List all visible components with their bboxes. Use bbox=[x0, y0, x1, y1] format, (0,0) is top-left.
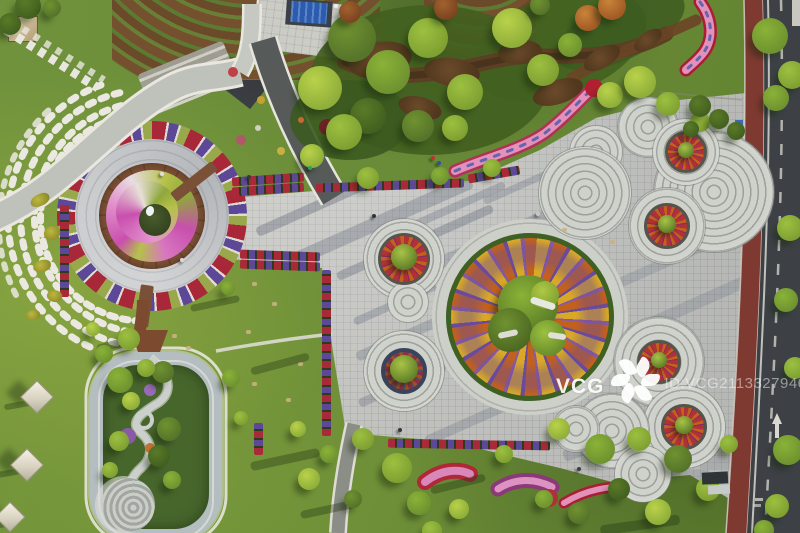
tree bbox=[221, 281, 235, 295]
tree bbox=[152, 361, 174, 383]
flower-bed-tree bbox=[675, 416, 693, 434]
tree bbox=[157, 417, 181, 441]
topiary-hedge bbox=[26, 310, 40, 320]
person-dot bbox=[398, 428, 402, 432]
tree bbox=[15, 0, 41, 19]
tree bbox=[163, 471, 181, 489]
flower-bed-tree bbox=[678, 142, 694, 158]
park-aerial-photo: VCG ID:VCG211332794686 | bbox=[0, 0, 800, 533]
tree bbox=[784, 357, 800, 379]
tree bbox=[408, 18, 448, 58]
tree bbox=[148, 445, 170, 467]
tree bbox=[320, 445, 338, 463]
tree bbox=[447, 74, 483, 110]
canopy-tent bbox=[0, 501, 26, 532]
tree bbox=[727, 122, 745, 140]
lawn-shadow bbox=[430, 473, 486, 494]
tree bbox=[222, 369, 240, 387]
topiary-hedge bbox=[29, 191, 52, 209]
lawn-stone bbox=[186, 346, 191, 350]
tree bbox=[765, 494, 789, 518]
lawn-flower-patch bbox=[298, 117, 304, 123]
mulch-patch bbox=[580, 39, 625, 76]
person-dot bbox=[180, 258, 184, 262]
tree bbox=[535, 490, 553, 508]
canopy-tent bbox=[20, 380, 54, 414]
tree bbox=[683, 121, 699, 137]
lawn-stone bbox=[252, 382, 257, 386]
flower-planter-row bbox=[322, 270, 331, 436]
tree bbox=[357, 167, 379, 189]
lawn-stone bbox=[286, 398, 291, 402]
tree bbox=[778, 61, 800, 89]
tree bbox=[763, 85, 789, 111]
tree bbox=[558, 33, 582, 57]
tree bbox=[773, 435, 800, 465]
tree bbox=[434, 0, 458, 20]
lawn-shadow bbox=[190, 295, 240, 312]
tree bbox=[449, 499, 469, 519]
tree bbox=[598, 0, 626, 20]
lawn-flower-patch bbox=[236, 135, 246, 145]
lawn-stone bbox=[272, 302, 277, 306]
tree bbox=[752, 18, 788, 54]
flower-bed-tree bbox=[658, 215, 676, 233]
tree bbox=[102, 462, 118, 478]
topiary-hedge bbox=[32, 259, 51, 273]
person-dot bbox=[308, 166, 312, 170]
tree bbox=[326, 114, 362, 150]
tree bbox=[0, 13, 21, 35]
tree bbox=[300, 144, 324, 168]
tree bbox=[548, 418, 570, 440]
tree bbox=[344, 490, 362, 508]
flower-planter-row bbox=[60, 205, 69, 297]
tree bbox=[530, 0, 550, 15]
paving-ring-set bbox=[539, 147, 631, 239]
tree bbox=[777, 215, 800, 241]
flower-bed-tree bbox=[390, 355, 418, 383]
flower-planter-row bbox=[388, 439, 550, 451]
tree bbox=[664, 445, 692, 473]
tree bbox=[431, 167, 449, 185]
tree bbox=[608, 478, 630, 500]
tree bbox=[442, 115, 468, 141]
tree bbox=[709, 109, 729, 129]
tree bbox=[137, 359, 155, 377]
tree bbox=[422, 521, 442, 533]
tree bbox=[597, 82, 623, 108]
person-dot bbox=[431, 156, 435, 160]
lawn-stone bbox=[610, 240, 615, 244]
tree bbox=[107, 367, 133, 393]
person-dot bbox=[536, 212, 540, 216]
tree bbox=[298, 66, 342, 110]
tree bbox=[352, 428, 374, 450]
mulch-patch bbox=[630, 24, 665, 55]
tree bbox=[339, 1, 361, 23]
paving-ring-set bbox=[388, 282, 428, 322]
flower-planter-row bbox=[240, 260, 320, 272]
flower-bed-tree bbox=[651, 352, 667, 368]
tree bbox=[656, 92, 680, 116]
tree bbox=[689, 95, 711, 117]
canopy-tent bbox=[10, 448, 44, 482]
lawn-stone bbox=[246, 330, 251, 334]
bench-light bbox=[708, 484, 730, 494]
lawn-flower-patch bbox=[257, 96, 265, 104]
lawn-flower-patch bbox=[277, 147, 285, 155]
tree bbox=[585, 434, 615, 464]
tree bbox=[86, 322, 100, 336]
flower-bed-tree bbox=[391, 244, 417, 270]
person-dot bbox=[372, 214, 376, 218]
tree bbox=[234, 411, 248, 425]
tree bbox=[95, 345, 113, 363]
tree bbox=[754, 520, 774, 533]
tree bbox=[118, 328, 140, 350]
lawn-flower-patch bbox=[144, 384, 156, 396]
person-dot bbox=[577, 467, 581, 471]
tree bbox=[575, 5, 601, 31]
tree bbox=[774, 288, 798, 312]
tree bbox=[483, 159, 501, 177]
tree bbox=[109, 431, 129, 451]
person-dot bbox=[437, 161, 441, 165]
tree bbox=[568, 502, 590, 524]
tree bbox=[720, 435, 738, 453]
tree bbox=[645, 499, 671, 525]
lawn-stone bbox=[252, 282, 257, 286]
bench-dark bbox=[702, 471, 729, 484]
tree bbox=[407, 491, 431, 515]
tree bbox=[527, 54, 559, 86]
tree bbox=[122, 392, 140, 410]
lawn-flower-patch bbox=[255, 125, 261, 131]
tree bbox=[298, 468, 320, 490]
lawn-flower-patch bbox=[228, 67, 238, 77]
person-dot bbox=[247, 175, 251, 179]
topiary-hedge bbox=[43, 225, 61, 242]
flower-planter-row bbox=[254, 423, 263, 455]
lawn-stone bbox=[562, 228, 567, 232]
tree bbox=[382, 453, 412, 483]
tree bbox=[492, 8, 532, 48]
tree bbox=[627, 427, 651, 451]
generated-features bbox=[0, 0, 800, 533]
tree bbox=[624, 66, 656, 98]
lawn-stone bbox=[172, 334, 177, 338]
person-dot bbox=[160, 172, 164, 176]
tree bbox=[290, 421, 306, 437]
tree bbox=[43, 0, 61, 17]
tree bbox=[495, 445, 513, 463]
tree bbox=[402, 110, 434, 142]
tree bbox=[366, 50, 410, 94]
